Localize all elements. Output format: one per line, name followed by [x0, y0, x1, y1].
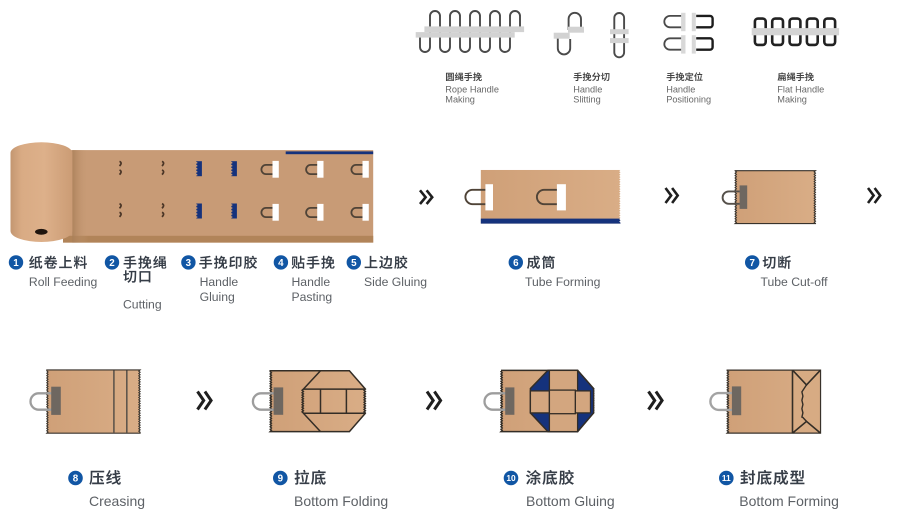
- svg-text:Rope Handle: Rope Handle: [445, 84, 499, 94]
- svg-text:Handle: Handle: [292, 275, 331, 289]
- svg-text:Cutting: Cutting: [123, 298, 162, 312]
- svg-text:6: 6: [513, 258, 519, 269]
- svg-text:8: 8: [73, 474, 79, 485]
- svg-text:Bottom Gluing: Bottom Gluing: [526, 493, 615, 509]
- svg-text:Bottom Forming: Bottom Forming: [739, 493, 839, 509]
- svg-text:10: 10: [506, 473, 516, 483]
- svg-text:Tube Forming: Tube Forming: [525, 275, 600, 289]
- svg-text:Creasing: Creasing: [89, 493, 145, 509]
- svg-text:7: 7: [749, 258, 755, 269]
- svg-text:2: 2: [109, 258, 115, 269]
- svg-text:Bottom Folding: Bottom Folding: [294, 493, 388, 509]
- svg-text:1: 1: [13, 258, 19, 269]
- svg-text:Side Gluing: Side Gluing: [364, 275, 427, 289]
- svg-text:Handle: Handle: [573, 84, 602, 94]
- svg-text:Tube Cut-off: Tube Cut-off: [761, 275, 829, 289]
- svg-text:11: 11: [722, 473, 731, 483]
- svg-text:9: 9: [278, 474, 284, 485]
- svg-text:Making: Making: [777, 95, 807, 105]
- svg-text:Flat Handle: Flat Handle: [777, 84, 824, 94]
- svg-text:5: 5: [351, 258, 357, 269]
- svg-text:Slitting: Slitting: [573, 95, 601, 105]
- svg-text:3: 3: [186, 258, 192, 269]
- svg-text:Pasting: Pasting: [292, 290, 333, 304]
- svg-text:Roll Feeding: Roll Feeding: [29, 275, 97, 289]
- svg-text:Handle: Handle: [666, 84, 695, 94]
- svg-text:Positioning: Positioning: [666, 95, 711, 105]
- svg-text:Making: Making: [445, 95, 475, 105]
- svg-text:Gluing: Gluing: [200, 290, 235, 304]
- svg-text:Handle: Handle: [200, 275, 239, 289]
- svg-text:4: 4: [278, 258, 284, 269]
